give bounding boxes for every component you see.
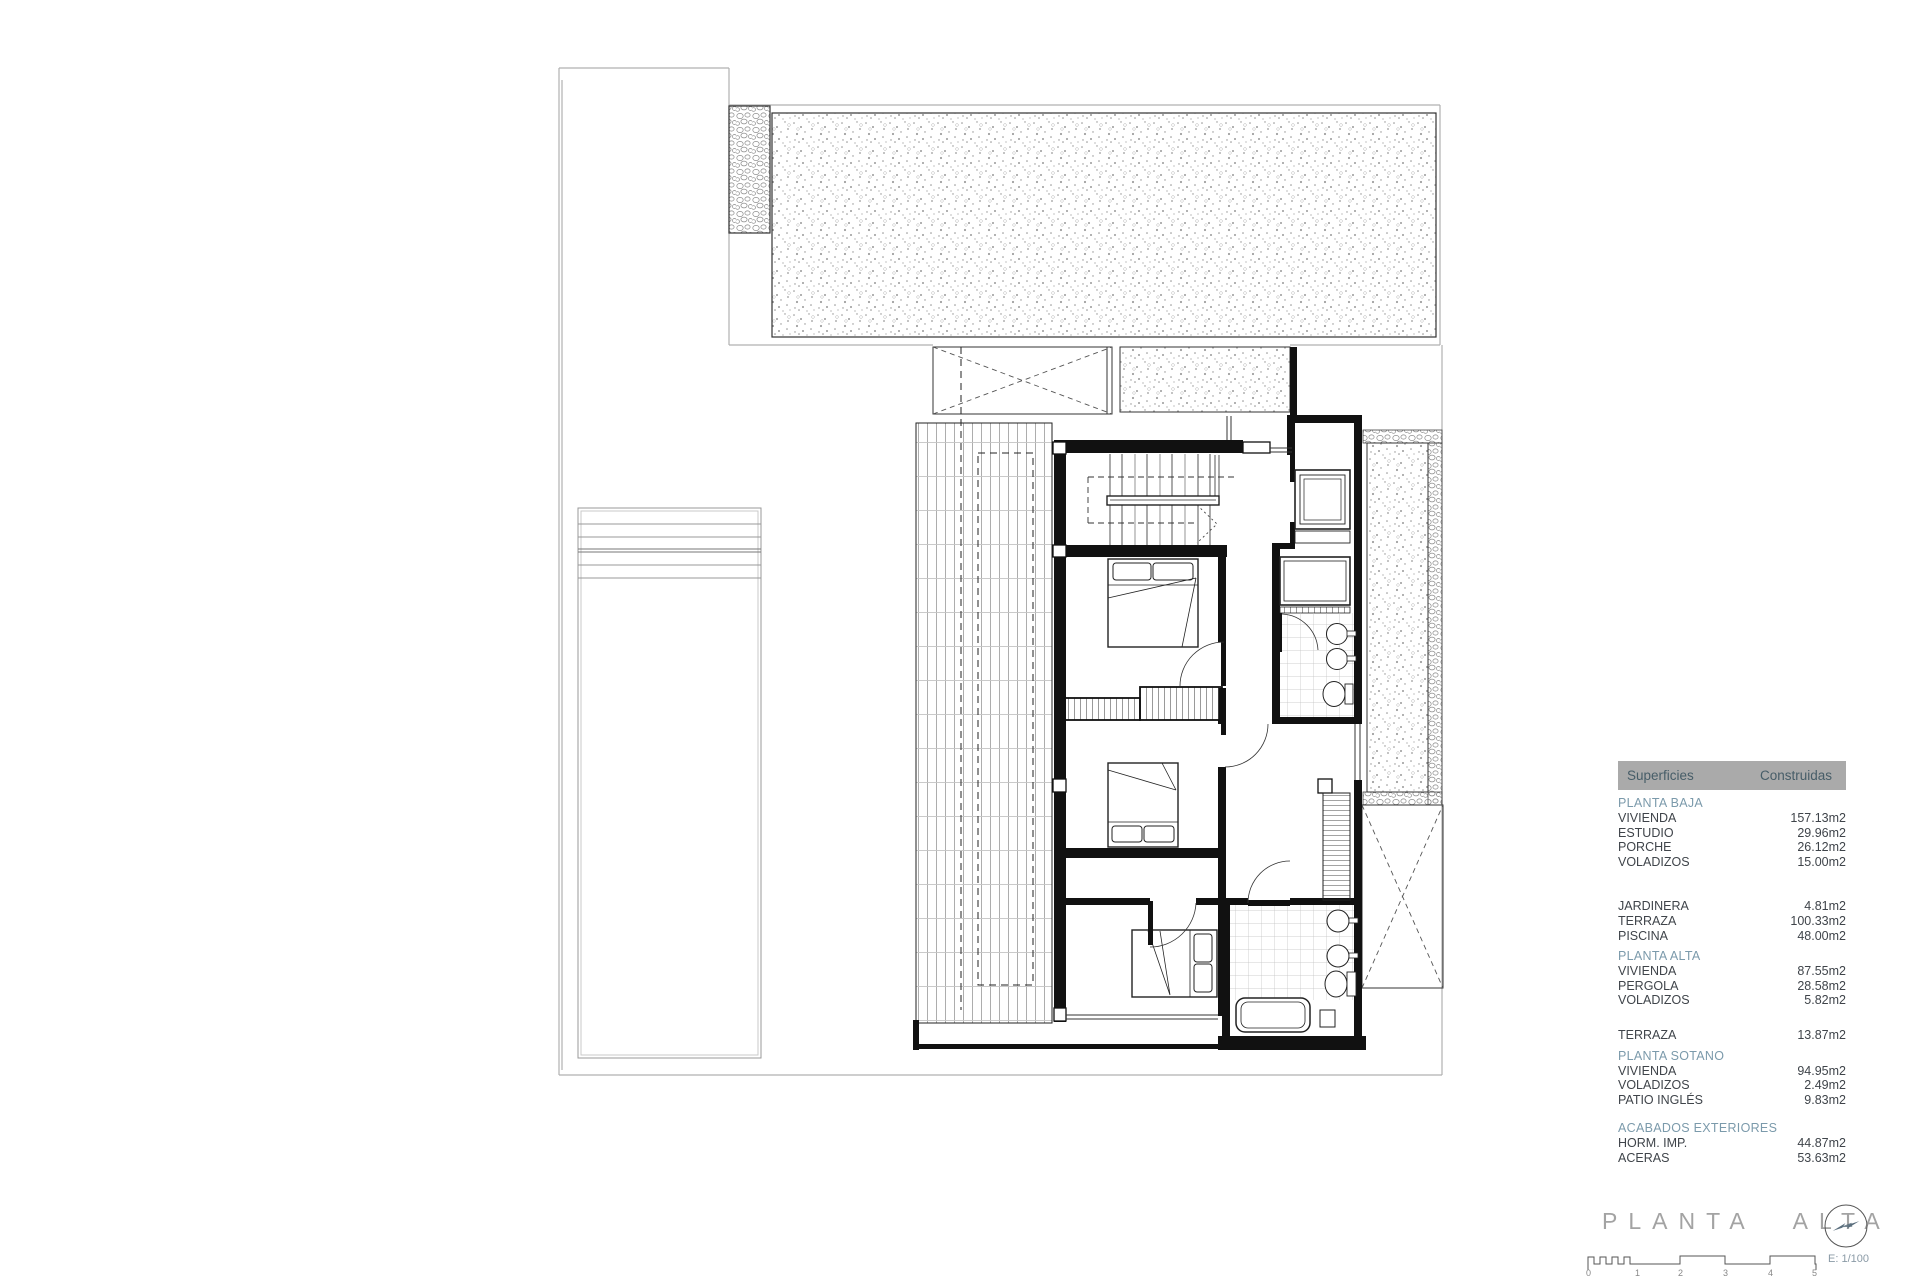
table-row: ACERAS53.63m2 bbox=[1618, 1151, 1846, 1166]
surfaces-table: Superficies Construidas PLANTA BAJA VIVI… bbox=[1618, 761, 1846, 1166]
row-value: 26.12m2 bbox=[1797, 840, 1846, 855]
scale-label: E: 1/100 bbox=[1828, 1253, 1869, 1265]
row-label: JARDINERA bbox=[1618, 899, 1689, 914]
section-title: PLANTA SOTANO bbox=[1618, 1049, 1846, 1064]
row-value: 5.82m2 bbox=[1804, 993, 1846, 1008]
row-value: 28.58m2 bbox=[1797, 979, 1846, 994]
table-row: PORCHE26.12m2 bbox=[1618, 840, 1846, 855]
row-label: HORM. IMP. bbox=[1618, 1136, 1687, 1151]
row-label: VIVIENDA bbox=[1618, 811, 1676, 826]
shower bbox=[1295, 470, 1350, 543]
scale-tick: 2 bbox=[1678, 1268, 1683, 1278]
table-row: ESTUDIO29.96m2 bbox=[1618, 826, 1846, 841]
row-value: 29.96m2 bbox=[1797, 826, 1846, 841]
table-row: HORM. IMP.44.87m2 bbox=[1618, 1136, 1846, 1151]
row-label: PISCINA bbox=[1618, 929, 1668, 944]
row-value: 94.95m2 bbox=[1797, 1064, 1846, 1079]
section-title: PLANTA BAJA bbox=[1618, 796, 1846, 811]
table-header: Superficies Construidas bbox=[1618, 761, 1846, 790]
cabinet bbox=[1280, 557, 1350, 613]
section-planta-baja: PLANTA BAJA VIVIENDA157.13m2 ESTUDIO29.9… bbox=[1618, 796, 1846, 869]
row-label: ESTUDIO bbox=[1618, 826, 1674, 841]
wardrobe bbox=[1065, 687, 1222, 720]
section-exterior-baja: JARDINERA4.81m2 TERRAZA100.33m2 PISCINA4… bbox=[1618, 899, 1846, 943]
table-row: VOLADIZOS2.49m2 bbox=[1618, 1078, 1846, 1093]
staircase bbox=[1088, 454, 1238, 545]
table-row: VIVIENDA94.95m2 bbox=[1618, 1064, 1846, 1079]
section-terraza-alta: TERRAZA13.87m2 bbox=[1618, 1028, 1846, 1043]
row-label: VOLADIZOS bbox=[1618, 1078, 1690, 1093]
roof-terrace bbox=[729, 106, 1436, 337]
row-value: 4.81m2 bbox=[1804, 899, 1846, 914]
row-label: TERRAZA bbox=[1618, 914, 1676, 929]
table-row: JARDINERA4.81m2 bbox=[1618, 899, 1846, 914]
floorplan-sheet: { "table": { "header": {"left": "Superfi… bbox=[0, 0, 1920, 1280]
row-label: VIVIENDA bbox=[1618, 964, 1676, 979]
section-title: PLANTA ALTA bbox=[1618, 949, 1846, 964]
section-acabados: ACABADOS EXTERIORES HORM. IMP.44.87m2 AC… bbox=[1618, 1121, 1846, 1165]
table-row: TERRAZA13.87m2 bbox=[1618, 1028, 1846, 1043]
jardinera bbox=[1363, 430, 1442, 805]
row-value: 87.55m2 bbox=[1797, 964, 1846, 979]
scale-tick: 5 bbox=[1812, 1268, 1817, 1278]
stone-wall-hatch bbox=[729, 106, 770, 233]
section-planta-sotano: PLANTA SOTANO VIVIENDA94.95m2 VOLADIZOS2… bbox=[1618, 1049, 1846, 1108]
table-row: PERGOLA28.58m2 bbox=[1618, 979, 1846, 994]
scale-tick: 3 bbox=[1723, 1268, 1728, 1278]
scale-tick: 1 bbox=[1635, 1268, 1640, 1278]
row-label: VOLADIZOS bbox=[1618, 993, 1690, 1008]
row-label: ACERAS bbox=[1618, 1151, 1669, 1166]
closet-shelves bbox=[1323, 793, 1350, 900]
row-label: PERGOLA bbox=[1618, 979, 1678, 994]
pergola-outline-2 bbox=[1362, 805, 1443, 988]
scale-tick: 4 bbox=[1768, 1268, 1773, 1278]
row-value: 100.33m2 bbox=[1790, 914, 1846, 929]
row-value: 15.00m2 bbox=[1797, 855, 1846, 870]
row-value: 53.63m2 bbox=[1797, 1151, 1846, 1166]
row-value: 9.83m2 bbox=[1804, 1093, 1846, 1108]
table-row: VIVIENDA157.13m2 bbox=[1618, 811, 1846, 826]
wood-deck bbox=[916, 347, 1052, 1023]
terrace-band bbox=[1120, 347, 1290, 412]
scale-bar: 0 1 2 3 4 5 E: 1/100 bbox=[1580, 1242, 1900, 1278]
section-title: ACABADOS EXTERIORES bbox=[1618, 1121, 1846, 1136]
row-value: 48.00m2 bbox=[1797, 929, 1846, 944]
table-header-left: Superficies bbox=[1627, 768, 1694, 783]
row-value: 157.13m2 bbox=[1790, 811, 1846, 826]
table-row: VOLADIZOS15.00m2 bbox=[1618, 855, 1846, 870]
row-value: 44.87m2 bbox=[1797, 1136, 1846, 1151]
bathroom-small bbox=[1278, 613, 1356, 717]
table-row: TERRAZA100.33m2 bbox=[1618, 914, 1846, 929]
swimming-pool bbox=[578, 508, 761, 1058]
table-row: VIVIENDA87.55m2 bbox=[1618, 964, 1846, 979]
pergola-outline bbox=[933, 347, 1112, 414]
row-label: PATIO INGLÉS bbox=[1618, 1093, 1703, 1108]
row-label: VIVIENDA bbox=[1618, 1064, 1676, 1079]
bed-1 bbox=[1108, 559, 1198, 647]
table-row: PISCINA48.00m2 bbox=[1618, 929, 1846, 944]
row-value: 13.87m2 bbox=[1797, 1028, 1846, 1043]
section-planta-alta: PLANTA ALTA VIVIENDA87.55m2 PERGOLA28.58… bbox=[1618, 949, 1846, 1008]
row-label: VOLADIZOS bbox=[1618, 855, 1690, 870]
row-label: TERRAZA bbox=[1618, 1028, 1676, 1043]
scale-tick: 0 bbox=[1586, 1268, 1591, 1278]
table-header-right: Construidas bbox=[1760, 768, 1832, 783]
bed-2 bbox=[1108, 763, 1178, 847]
row-value: 2.49m2 bbox=[1804, 1078, 1846, 1093]
table-row: PATIO INGLÉS9.83m2 bbox=[1618, 1093, 1846, 1108]
row-label: PORCHE bbox=[1618, 840, 1671, 855]
table-row: VOLADIZOS5.82m2 bbox=[1618, 993, 1846, 1008]
